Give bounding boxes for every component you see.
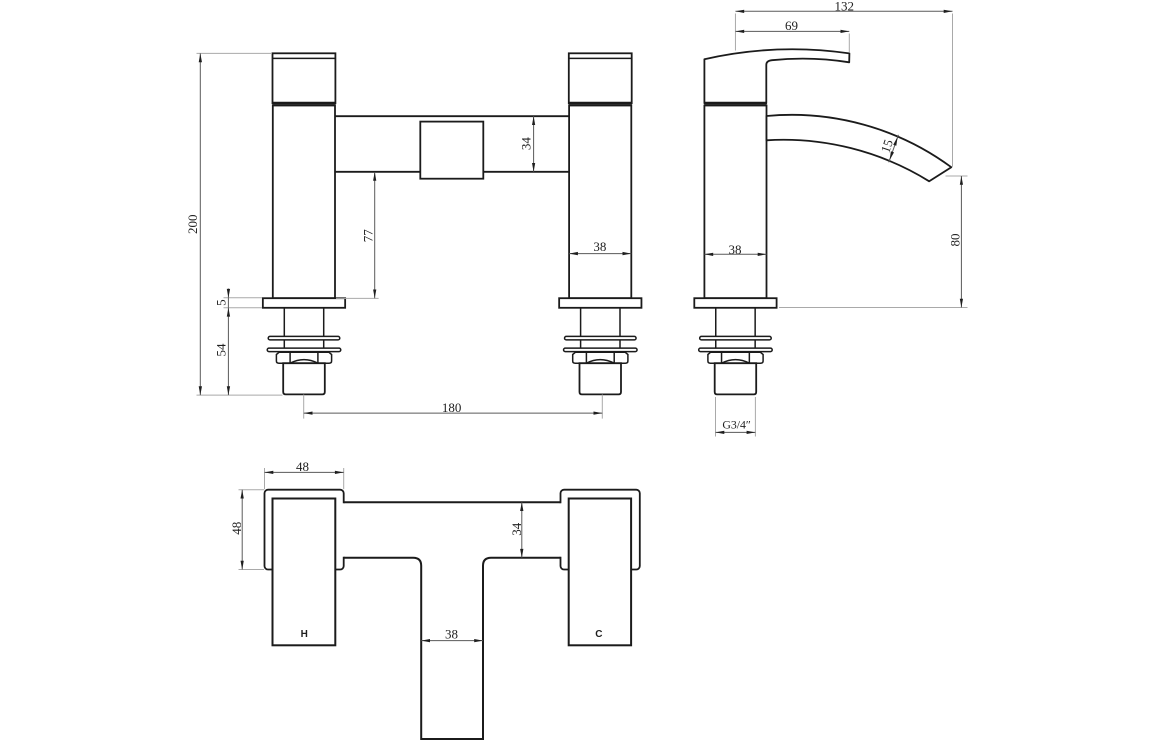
- svg-text:34: 34: [518, 137, 533, 151]
- svg-text:200: 200: [185, 214, 200, 234]
- svg-text:48: 48: [229, 522, 244, 535]
- svg-text:132: 132: [834, 0, 854, 13]
- svg-text:180: 180: [442, 400, 462, 415]
- svg-text:G3/4″: G3/4″: [722, 417, 751, 431]
- svg-text:48: 48: [296, 459, 309, 474]
- svg-text:77: 77: [361, 229, 376, 243]
- svg-text:5: 5: [213, 299, 228, 306]
- svg-text:80: 80: [948, 234, 963, 247]
- svg-text:34: 34: [509, 522, 524, 536]
- svg-text:69: 69: [785, 18, 798, 33]
- svg-text:38: 38: [593, 239, 606, 254]
- svg-text:H: H: [301, 629, 308, 640]
- svg-text:C: C: [595, 629, 602, 640]
- svg-text:38: 38: [445, 626, 458, 641]
- svg-text:54: 54: [214, 343, 229, 357]
- svg-text:38: 38: [729, 242, 742, 257]
